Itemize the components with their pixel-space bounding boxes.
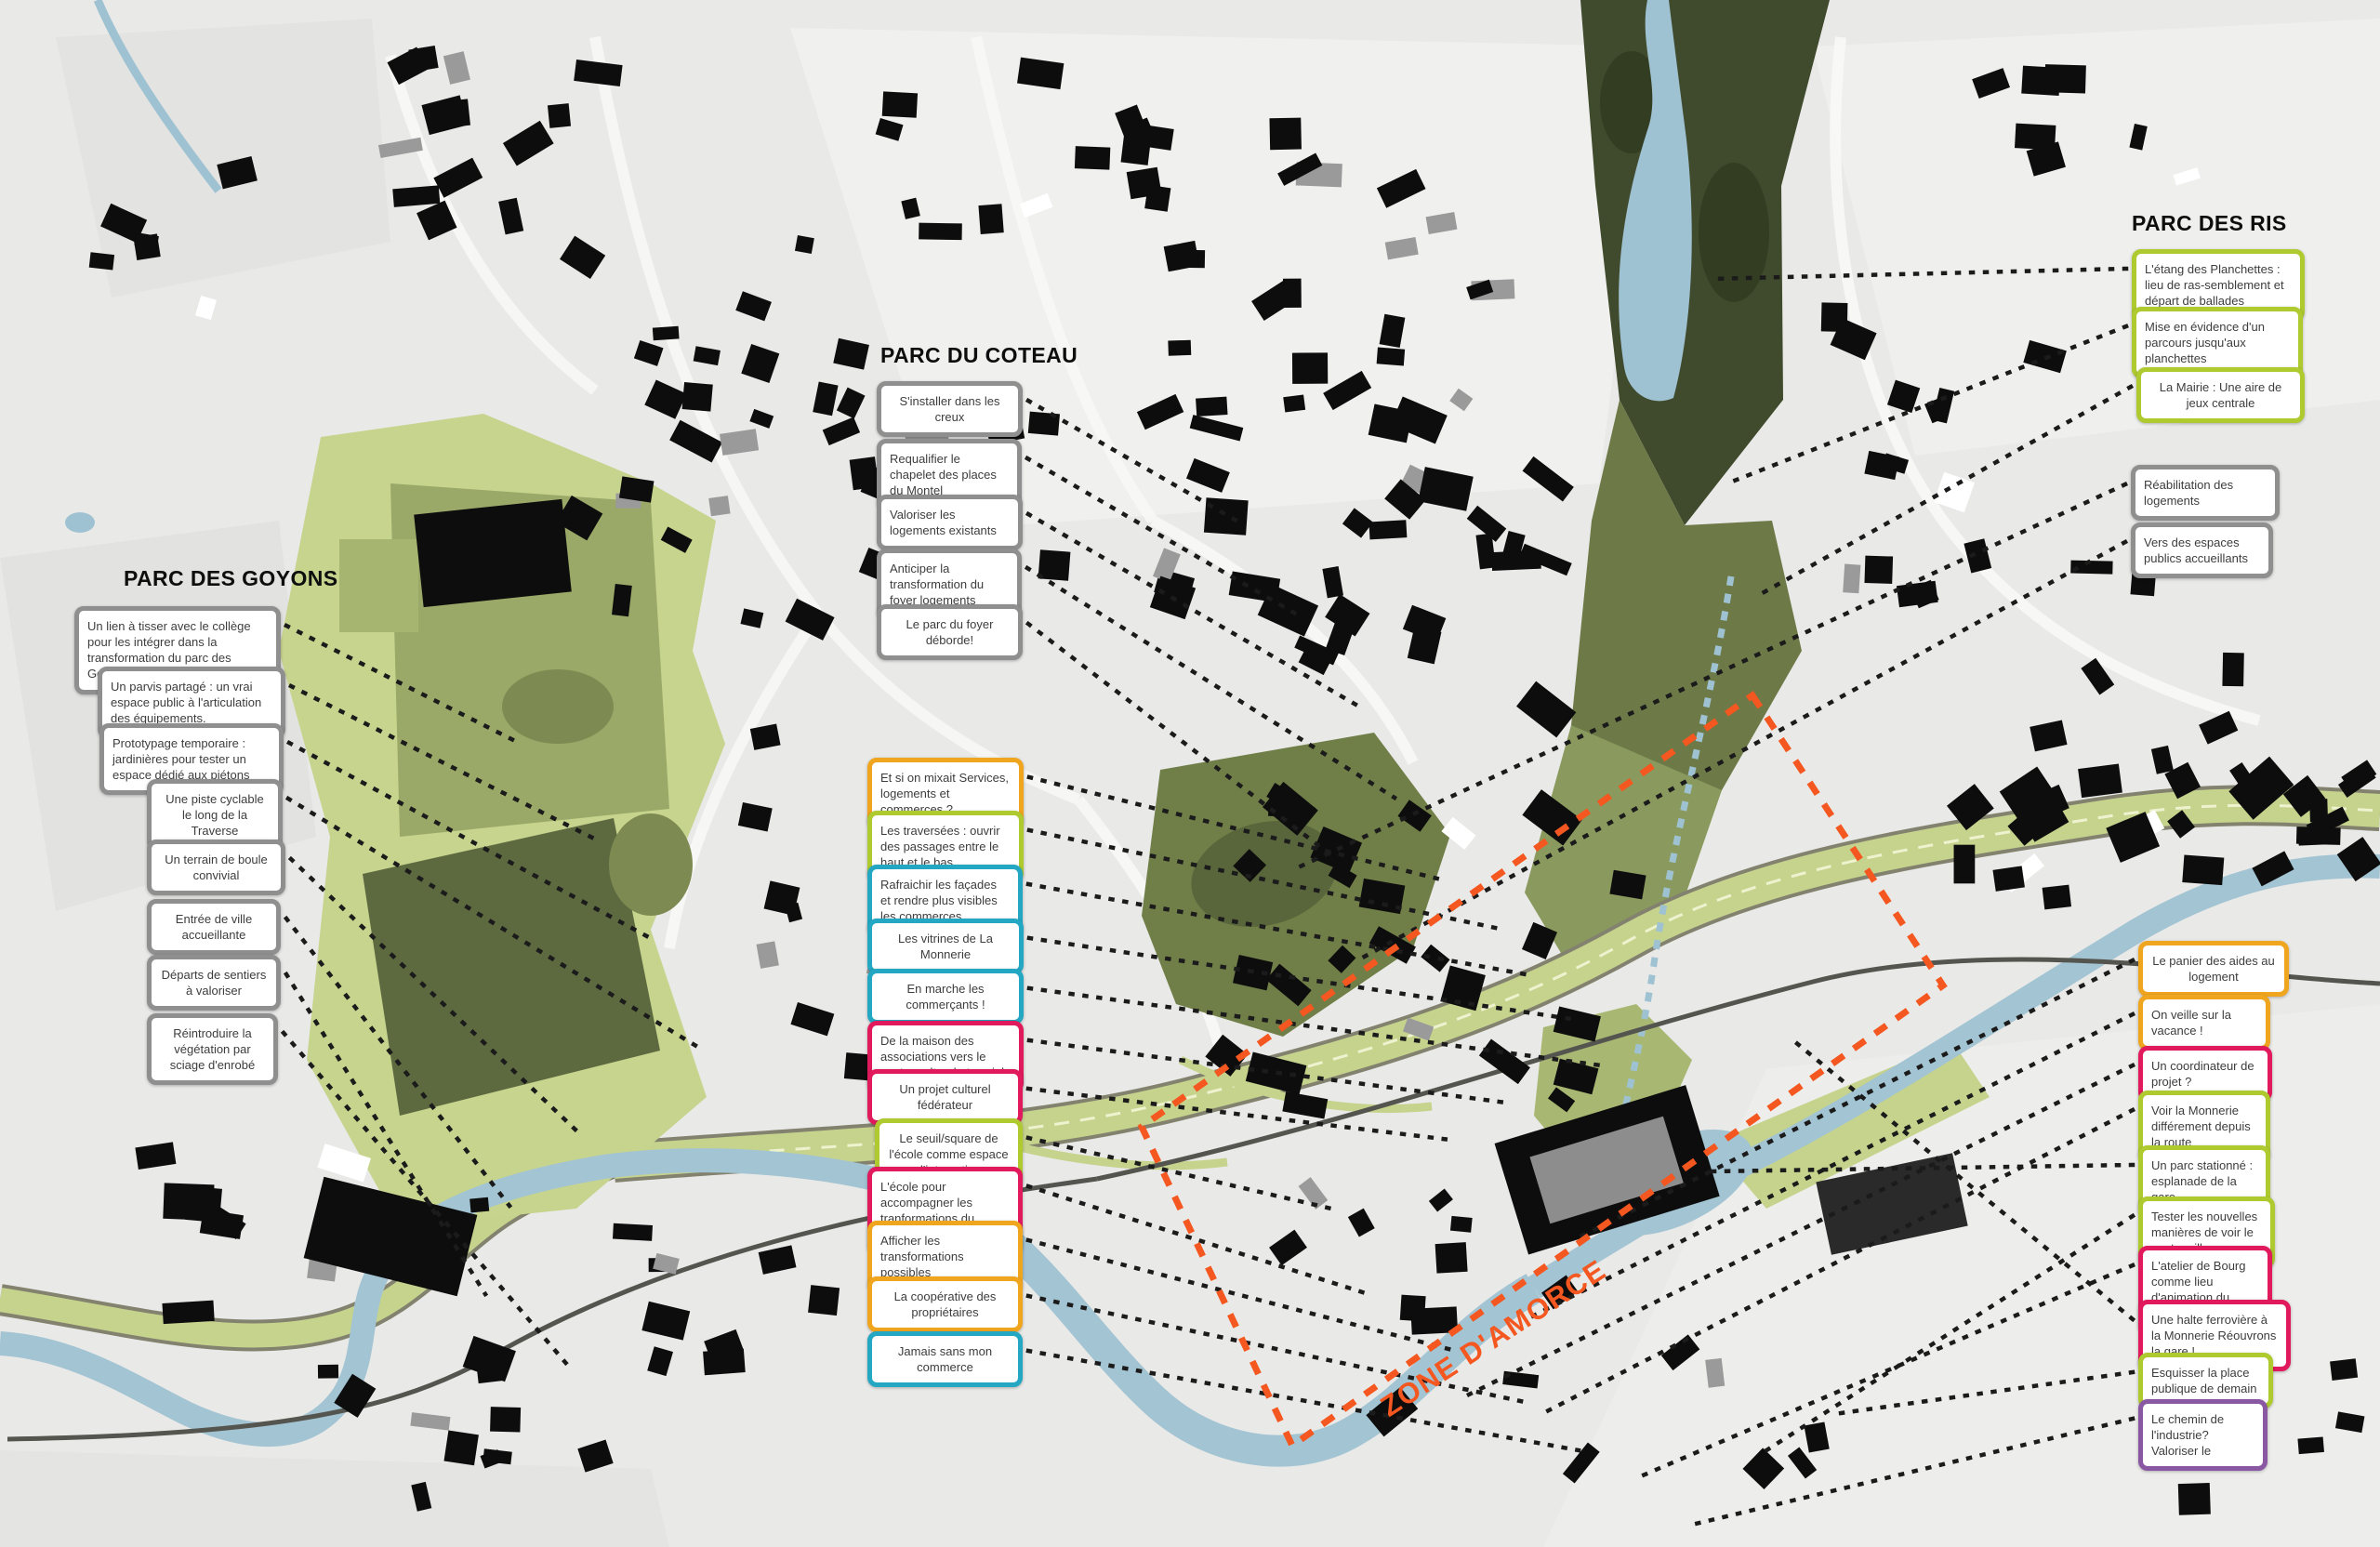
section-title-coteau: PARC DU COTEAU bbox=[880, 344, 1078, 367]
annotation-box-goyons-4: Un terrain de boule convivial bbox=[147, 840, 285, 895]
annotation-text: Mise en évidence d'un parcours jusqu'aux… bbox=[2145, 320, 2265, 365]
building-footprint bbox=[613, 1223, 653, 1241]
annotation-text: Afficher les transformations possibles bbox=[880, 1234, 964, 1279]
annotation-box-coteau-4: Le parc du foyer déborde! bbox=[877, 604, 1023, 660]
building-footprint bbox=[882, 91, 918, 117]
annotation-text: En marche les commerçants ! bbox=[906, 982, 985, 1011]
building-footprint bbox=[1283, 279, 1302, 308]
annotation-text: Réabilitation des logements bbox=[2144, 478, 2233, 508]
building-footprint bbox=[1269, 118, 1301, 151]
building-footprint bbox=[1450, 1216, 1473, 1233]
annotation-text: Départs de sentiers à valoriser bbox=[162, 968, 267, 998]
building-footprint bbox=[1292, 352, 1328, 384]
college-building bbox=[414, 499, 572, 607]
annotation-box-ris-2: La Mairie : Une aire de jeux centrale bbox=[2136, 367, 2305, 423]
annotation-text: L'étang des Planchettes : lieu de ras-se… bbox=[2145, 262, 2284, 308]
building-footprint bbox=[490, 1407, 521, 1432]
annotation-box-coteau-0: S'installer dans les creux bbox=[877, 381, 1023, 437]
building-footprint bbox=[548, 103, 571, 128]
annotation-box-center-4: En marche les commerçants ! bbox=[867, 969, 1024, 1025]
building-footprint bbox=[1992, 866, 2024, 891]
annotation-text: Valoriser les logements existants bbox=[890, 508, 997, 537]
building-footprint bbox=[162, 1301, 214, 1324]
building-footprint bbox=[682, 382, 713, 412]
building-footprint bbox=[2182, 854, 2224, 885]
annotation-text: Voir la Monnerie différement depuis la r… bbox=[2151, 1104, 2251, 1149]
building-footprint bbox=[2296, 826, 2341, 845]
building-footprint bbox=[612, 584, 632, 616]
building-footprint bbox=[1144, 185, 1170, 212]
building-footprint bbox=[1168, 340, 1191, 356]
annotation-box-center-6: Un projet culturel fédérateur bbox=[867, 1069, 1023, 1125]
building-footprint bbox=[1843, 564, 1860, 594]
annotation-text: La Mairie : Une aire de jeux centrale bbox=[2160, 380, 2282, 410]
building-footprint bbox=[318, 1365, 338, 1379]
building-footprint bbox=[2015, 124, 2056, 151]
annotation-text: Une piste cyclable le long de la Travers… bbox=[165, 792, 264, 838]
building-footprint bbox=[1954, 845, 1976, 884]
annotation-text: Les traversées : ouvrir des passages ent… bbox=[880, 824, 1000, 869]
building-footprint bbox=[2297, 1436, 2324, 1454]
annotation-box-right-1: On veille sur la vacance ! bbox=[2138, 995, 2270, 1051]
annotation-text: Et si on mixait Services, logements et c… bbox=[880, 771, 1009, 816]
building-footprint bbox=[2044, 64, 2086, 93]
annotation-text: Rafraichir les façades et rendre plus vi… bbox=[880, 878, 998, 923]
annotation-box-center-3: Les vitrines de La Monnerie bbox=[867, 919, 1024, 974]
building-footprint bbox=[2330, 1358, 2358, 1381]
building-footprint bbox=[392, 185, 440, 207]
section-title-ris: PARC DES RIS bbox=[2132, 212, 2287, 235]
annotation-text: Un terrain de boule convivial bbox=[165, 853, 268, 882]
building-footprint bbox=[795, 235, 814, 254]
annotation-text: Le panier des aides au logement bbox=[2152, 954, 2275, 984]
building-footprint bbox=[1435, 1242, 1468, 1274]
building-footprint bbox=[808, 1285, 840, 1316]
annotation-box-coteau-2: Valoriser les logements existants bbox=[877, 495, 1023, 550]
annotation-text: Prototypage temporaire : jardinières pou… bbox=[112, 736, 249, 782]
building-footprint bbox=[89, 252, 114, 270]
building-footprint bbox=[1283, 394, 1305, 412]
urban-plan-poster: ZONE D'AMORCE PARC DES GOYONS PARC DU CO… bbox=[0, 0, 2380, 1547]
annotation-text: Le parc du foyer déborde! bbox=[906, 617, 994, 647]
annotation-text: Vers des espaces publics accueillants bbox=[2144, 535, 2248, 565]
annotation-box-goyons-6: Départs de sentiers à valoriser bbox=[147, 955, 281, 1011]
annotation-box-center-11: Jamais sans mon commerce bbox=[867, 1331, 1023, 1387]
annotation-text: Un parvis partagé : un vrai espace publi… bbox=[111, 680, 261, 725]
building-footprint bbox=[708, 496, 730, 516]
building-footprint bbox=[2178, 1483, 2211, 1515]
building-footprint bbox=[469, 1197, 489, 1213]
annotation-text: Le chemin de l'industrie? Valoriser le bbox=[2151, 1412, 2224, 1458]
building-footprint bbox=[1204, 497, 1249, 535]
annotation-text: S'installer dans les creux bbox=[900, 394, 1000, 424]
annotation-text: Les vitrines de La Monnerie bbox=[898, 932, 993, 961]
building-footprint bbox=[1377, 348, 1406, 366]
annotation-text: Réintroduire la végétation par sciage d'… bbox=[170, 1026, 255, 1072]
annotation-text: Entrée de ville accueillante bbox=[176, 912, 252, 942]
annotation-box-goyons-5: Entrée de ville accueillante bbox=[147, 899, 281, 955]
annotation-text: Requalifier le chapelet des places du Mo… bbox=[890, 452, 997, 497]
building-footprint bbox=[1705, 1358, 1725, 1388]
building-footprint bbox=[978, 204, 1003, 234]
annotation-box-right-9: Le chemin de l'industrie? Valoriser le bbox=[2138, 1399, 2268, 1471]
building-footprint bbox=[1864, 556, 1893, 584]
building-footprint bbox=[2222, 653, 2243, 686]
building-footprint bbox=[2043, 885, 2071, 910]
building-footprint bbox=[919, 223, 962, 240]
annotation-text: Jamais sans mon commerce bbox=[898, 1344, 992, 1374]
annotation-text: Esquisser la place publique de demain bbox=[2151, 1366, 2256, 1395]
building-footprint bbox=[1075, 146, 1110, 169]
annotation-text: Un coordinateur de projet ? bbox=[2151, 1059, 2254, 1089]
annotation-box-center-10: La coopérative des propriétaires bbox=[867, 1276, 1023, 1332]
building-footprint bbox=[443, 1430, 478, 1465]
annotation-box-right-0: Le panier des aides au logement bbox=[2138, 941, 2289, 997]
annotation-text: On veille sur la vacance ! bbox=[2151, 1008, 2231, 1038]
building-footprint bbox=[2309, 799, 2328, 822]
building-footprint bbox=[2078, 763, 2122, 798]
annotation-box-ris-4: Vers des espaces publics accueillants bbox=[2131, 522, 2273, 578]
building-footprint bbox=[1368, 520, 1407, 539]
annotation-box-goyons-7: Réintroduire la végétation par sciage d'… bbox=[147, 1013, 278, 1085]
building-footprint bbox=[451, 99, 470, 126]
building-footprint bbox=[653, 326, 680, 341]
building-footprint bbox=[1196, 397, 1227, 416]
section-title-goyons: PARC DES GOYONS bbox=[124, 567, 338, 590]
map: ZONE D'AMORCE bbox=[0, 0, 2380, 1547]
annotation-text: Anticiper la transformation du foyer log… bbox=[890, 562, 984, 607]
annotation-box-ris-3: Réabilitation des logements bbox=[2131, 465, 2280, 521]
annotation-text: Une halte ferrovière à la Monnerie Réouv… bbox=[2151, 1313, 2276, 1358]
annotation-text: Un projet culturel fédérateur bbox=[899, 1082, 990, 1112]
annotation-text: La coopérative des propriétaires bbox=[894, 1289, 997, 1319]
building-footprint bbox=[408, 46, 438, 73]
